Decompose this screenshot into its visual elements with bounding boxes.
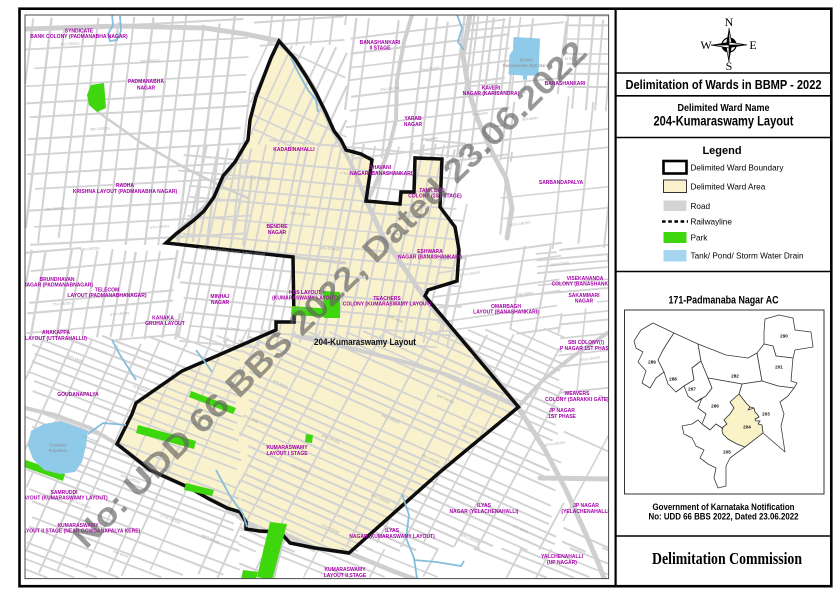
svg-text:Delimited Ward Area: Delimited Ward Area	[691, 182, 766, 191]
svg-text:GOUDANAPALYA: GOUDANAPALYA	[57, 392, 99, 398]
svg-text:LAYOUT (UTTARAHALLU): LAYOUT (UTTARAHALLU)	[25, 336, 87, 342]
svg-text:COLONY (SARAKKI GATE): COLONY (SARAKKI GATE)	[545, 397, 609, 403]
svg-text:Road: Road	[691, 202, 711, 211]
svg-text:290: 290	[780, 334, 788, 339]
svg-text:PADMANABHA: PADMANABHA	[128, 79, 164, 85]
svg-text:(UP NAGAR): (UP NAGAR)	[547, 560, 577, 566]
svg-text:289: 289	[648, 360, 656, 365]
svg-text:NAGAR (KUMARASWAMY LAYOUT): NAGAR (KUMARASWAMY LAYOUT)	[349, 534, 435, 540]
svg-text:267: 267	[688, 387, 696, 392]
svg-text:Delimited Ward Name: Delimited Ward Name	[678, 103, 770, 114]
svg-text:W: W	[700, 38, 712, 52]
svg-text:203: 203	[762, 412, 770, 417]
svg-text:288: 288	[669, 377, 677, 382]
svg-text:NAGAR (PADMANABNAGAR): NAGAR (PADMANABNAGAR)	[23, 283, 94, 289]
svg-text:204-Kumaraswamy Layout: 204-Kumaraswamy Layout	[654, 114, 794, 129]
svg-text:NAGAR (BANASHANKARI): NAGAR (BANASHANKARI)	[350, 171, 414, 177]
svg-text:BANK COLONY (PADMANABHA NAGAR): BANK COLONY (PADMANABHA NAGAR)	[30, 34, 128, 40]
svg-text:204: 204	[743, 425, 751, 430]
svg-text:LAYOUT (PADMANABHANAGAR): LAYOUT (PADMANABHANAGAR)	[67, 293, 146, 299]
svg-text:266: 266	[711, 404, 719, 409]
svg-text:SARBANDAPALYA: SARBANDAPALYA	[539, 180, 584, 186]
svg-text:LAYOUT (BANASHANKARI): LAYOUT (BANASHANKARI)	[473, 310, 539, 316]
svg-text:E: E	[749, 38, 756, 52]
svg-text:NAGAR: NAGAR	[404, 122, 423, 128]
svg-text:205: 205	[723, 450, 731, 455]
svg-text:Railwayline: Railwayline	[691, 218, 733, 227]
svg-text:204-Kumaraswamy Layout: 204-Kumaraswamy Layout	[314, 337, 416, 347]
svg-text:Legend: Legend	[702, 145, 741, 157]
svg-text:S: S	[726, 59, 733, 73]
svg-text:NAGAR: NAGAR	[268, 230, 287, 236]
svg-text:Tank/ Pond/ Storm Water Drain: Tank/ Pond/ Storm Water Drain	[691, 252, 804, 261]
svg-text:Polyakere: Polyakere	[49, 448, 68, 453]
svg-text:Delimited Ward Boundary: Delimited Ward Boundary	[691, 163, 785, 172]
svg-text:Delimitation Commission: Delimitation Commission	[652, 549, 802, 568]
svg-text:P NAGAR 1ST PHASE: P NAGAR 1ST PHASE	[560, 346, 613, 352]
svg-text:LAYOUT II STAGE: LAYOUT II STAGE	[324, 573, 367, 579]
svg-text:Delimitation of Wards in BBMP: Delimitation of Wards in BBMP - 2022	[626, 78, 822, 92]
svg-text:282: 282	[731, 374, 739, 379]
svg-text:NAGAR: NAGAR	[575, 299, 594, 305]
svg-text:GRUHA LAYOUT: GRUHA LAYOUT	[145, 321, 185, 327]
svg-text:KRISHNA LAYOUT (PADMANABHA NAG: KRISHNA LAYOUT (PADMANABHA NAGAR)	[73, 189, 178, 195]
svg-text:II STAGE: II STAGE	[369, 46, 391, 52]
svg-text:LAYOUT I STAGE: LAYOUT I STAGE	[266, 451, 308, 457]
svg-text:NAGAR: NAGAR	[137, 85, 156, 91]
svg-text:NAGAR (YELACHENAHALLI): NAGAR (YELACHENAHALLI)	[450, 509, 519, 515]
svg-text:1ST PHASE: 1ST PHASE	[548, 414, 576, 420]
svg-text:COLONY (KUMARASWAMY LAYOUT): COLONY (KUMARASWAMY LAYOUT)	[343, 302, 432, 308]
svg-text:NAGAR (BANASHANKARI): NAGAR (BANASHANKARI)	[398, 254, 462, 260]
svg-text:Park: Park	[691, 234, 709, 243]
svg-text:Behind: Behind	[519, 58, 533, 63]
svg-text:NAGAR: NAGAR	[211, 300, 230, 306]
svg-text:RADHA: RADHA	[116, 183, 134, 189]
svg-text:KADABINAHALLI: KADABINAHALLI	[273, 147, 315, 153]
svg-text:171-Padmanaba Nagar AC: 171-Padmanaba Nagar AC	[669, 295, 779, 307]
svg-text:No: UDD 66 BBS 2022, Dated 23.: No: UDD 66 BBS 2022, Dated 23.06.2022	[649, 512, 799, 523]
svg-text:N: N	[725, 15, 734, 29]
svg-text:Goudana: Goudana	[49, 443, 67, 448]
svg-text:(YELACHENAHALLI): (YELACHENAHALLI)	[561, 509, 610, 515]
svg-text:201: 201	[775, 365, 783, 370]
